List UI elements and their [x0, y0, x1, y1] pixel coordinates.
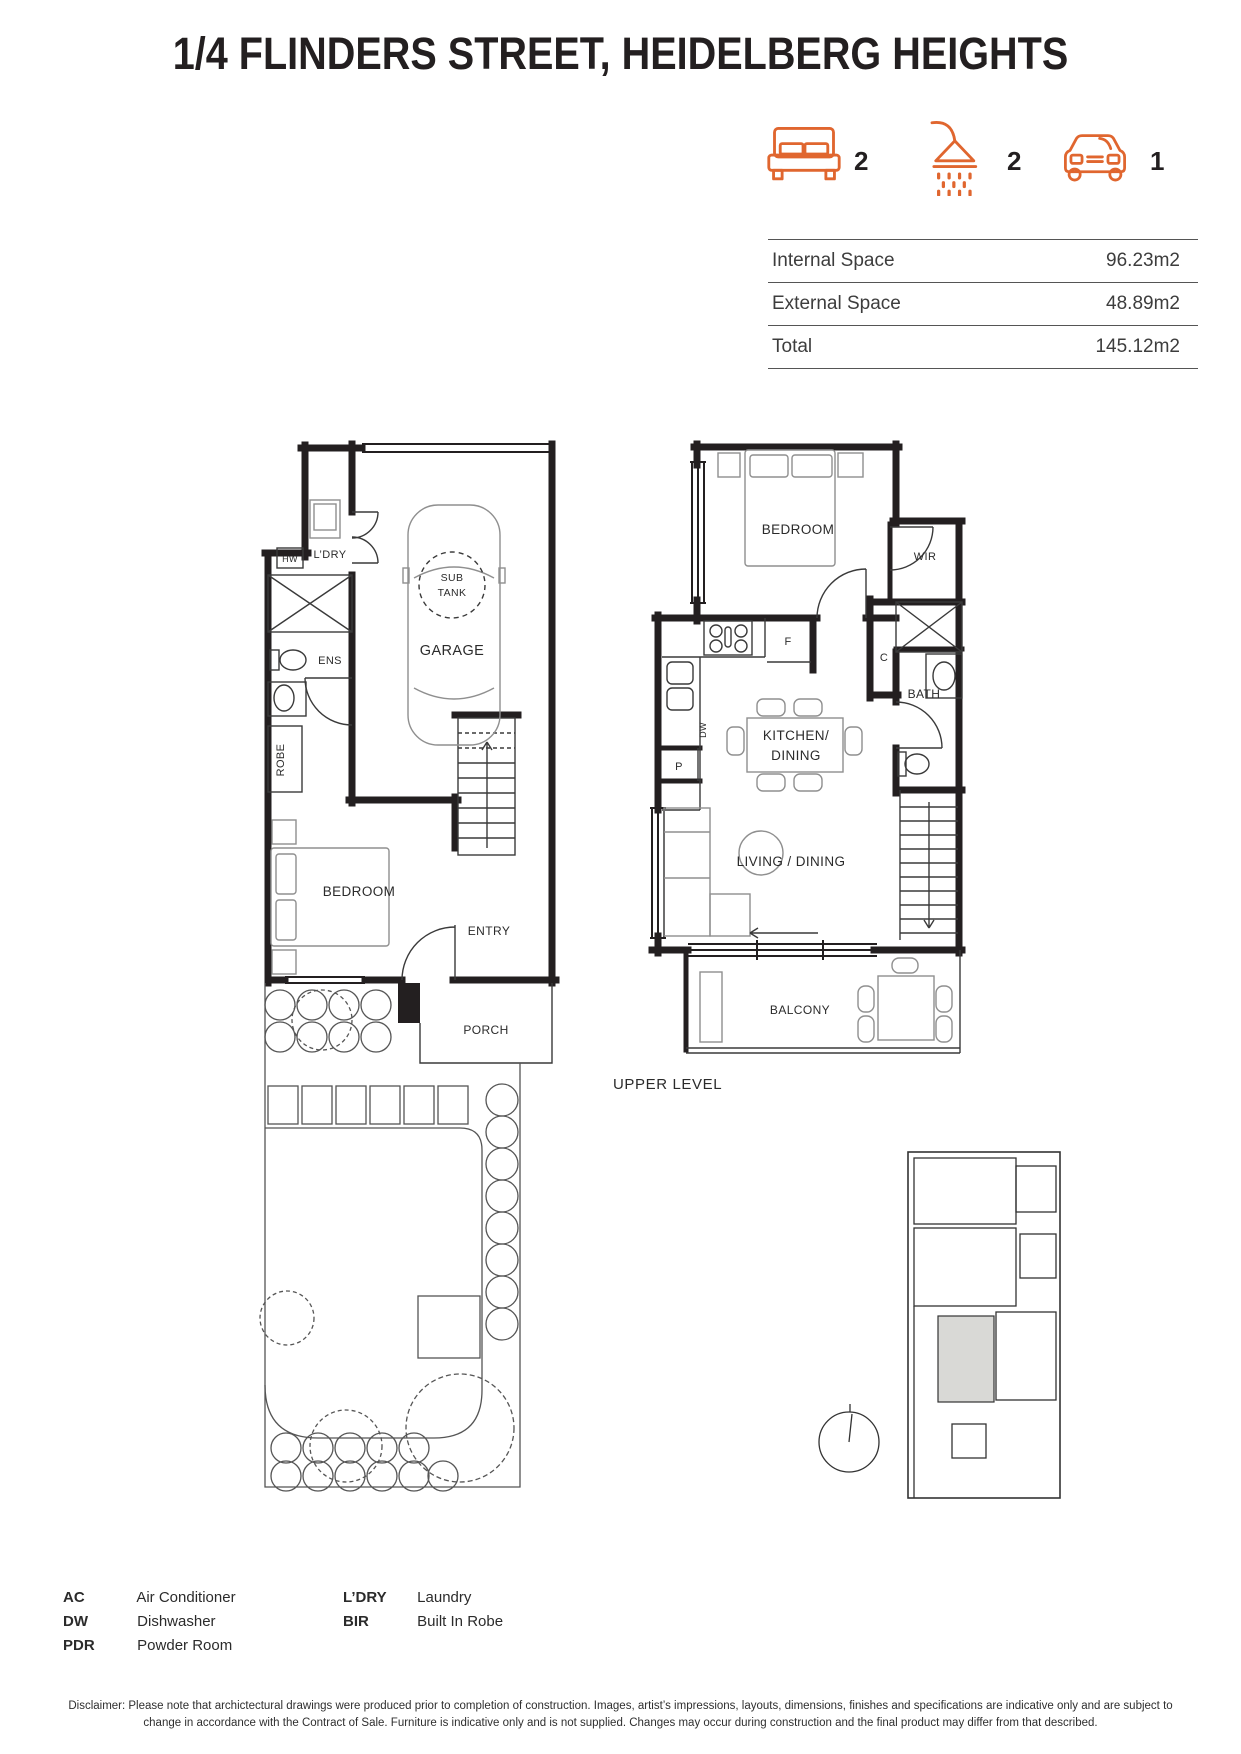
room-label-laundry: L’DRY — [314, 549, 347, 561]
bed-count: 2 — [854, 146, 868, 177]
area-table: Internal Space 96.23m2 External Space 48… — [768, 239, 1198, 369]
legend-item: AC Air Conditioner — [63, 1586, 236, 1610]
room-label-ens: ENS — [318, 655, 342, 667]
page-title: 1/4 FLINDERS STREET, HEIDELBERG HEIGHTS — [74, 28, 1166, 80]
car-count: 1 — [1150, 146, 1164, 177]
room-label-dishwasher: DW — [698, 722, 708, 738]
room-label-pantry: P — [675, 761, 683, 773]
room-label-cupboard: C — [880, 652, 888, 664]
row-label: External Space — [772, 293, 901, 315]
row-value: 48.89m2 — [1106, 293, 1180, 315]
room-label-entry: ENTRY — [468, 924, 510, 938]
legend-label: Built In Robe — [417, 1613, 503, 1630]
room-label-bedroom-upper: BEDROOM — [762, 522, 835, 537]
room-label-wir: WIR — [914, 551, 937, 563]
legend-abbr: DW — [63, 1610, 133, 1634]
row-label: Total — [772, 336, 812, 358]
room-label-kitchen-1: KITCHEN/ — [763, 728, 829, 743]
legend-label: Laundry — [417, 1589, 471, 1606]
legend-abbr: PDR — [63, 1634, 133, 1658]
shower-count: 2 — [1007, 146, 1021, 177]
subject-unit-highlight — [938, 1316, 994, 1402]
row-value: 145.12m2 — [1095, 336, 1180, 358]
room-label-robe: ROBE — [275, 744, 287, 777]
legend-item: L’DRY Laundry — [343, 1586, 503, 1610]
row-value: 96.23m2 — [1106, 250, 1180, 272]
shower-icon — [922, 118, 980, 196]
legend-item: PDR Powder Room — [63, 1634, 236, 1658]
room-label-bedroom-ground: BEDROOM — [323, 884, 396, 899]
ground-floor-plan: HW L’DRY ENS ROBE SUB TANK GARAGE BEDROO… — [225, 435, 570, 1495]
room-label-balcony: BALCONY — [770, 1003, 830, 1017]
room-label-hw: HW — [282, 554, 298, 564]
sub-tank-label-2: TANK — [438, 587, 467, 599]
upper-level-caption: UPPER LEVEL — [613, 1076, 722, 1093]
table-row: External Space 48.89m2 — [768, 282, 1198, 325]
room-label-porch: PORCH — [463, 1023, 508, 1037]
site-plan — [815, 1140, 1070, 1510]
legend-item: BIR Built In Robe — [343, 1610, 503, 1634]
room-label-kitchen-2: DINING — [771, 748, 821, 763]
legend-abbr: AC — [63, 1586, 133, 1610]
legend-label: Air Conditioner — [136, 1589, 235, 1606]
disclaimer-text: Disclaimer: Please note that archictectu… — [55, 1698, 1186, 1731]
legend-label: Dishwasher — [137, 1613, 215, 1630]
table-row: Total 145.12m2 — [768, 325, 1198, 369]
room-label-living: LIVING / DINING — [737, 854, 846, 869]
car-icon — [1058, 126, 1132, 186]
bed-icon — [765, 126, 843, 186]
room-label-garage: GARAGE — [420, 643, 484, 659]
table-row: Internal Space 96.23m2 — [768, 239, 1198, 282]
legend-label: Powder Room — [137, 1637, 232, 1654]
sub-tank-label-1: SUB — [441, 572, 464, 584]
legend-abbr: BIR — [343, 1610, 413, 1634]
row-label: Internal Space — [772, 250, 895, 272]
upper-floor-plan: BEDROOM WIR C F BATH DW P KITCHEN/ DININ… — [608, 435, 976, 1060]
room-label-bath: BATH — [908, 687, 941, 701]
legend-item: DW Dishwasher — [63, 1610, 236, 1634]
legend-abbr: L’DRY — [343, 1586, 413, 1610]
room-label-fridge: F — [784, 636, 791, 648]
